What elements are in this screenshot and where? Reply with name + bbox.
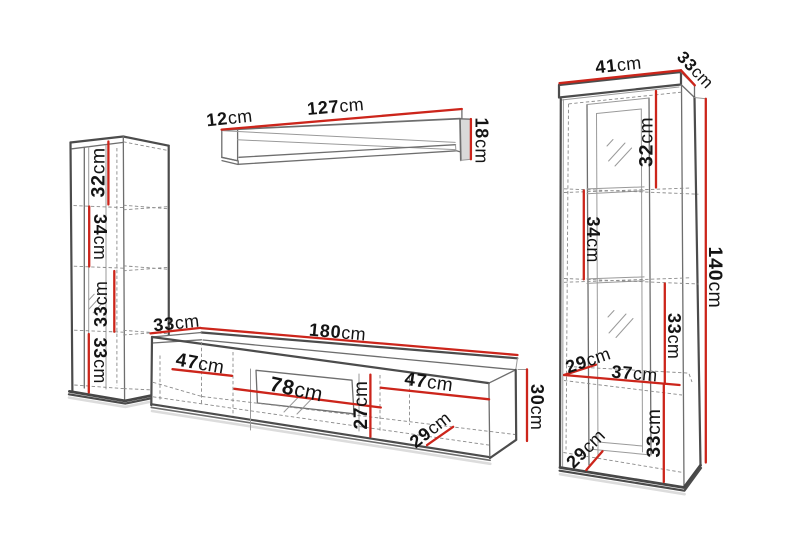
svg-text:27cm: 27cm	[351, 381, 372, 430]
svg-text:34cm: 34cm	[90, 214, 110, 260]
svg-text:33cm: 33cm	[664, 313, 684, 359]
svg-text:37cm: 37cm	[611, 362, 659, 386]
svg-text:18cm: 18cm	[472, 118, 492, 164]
svg-text:33cm: 33cm	[90, 338, 110, 384]
svg-text:140cm: 140cm	[704, 247, 726, 309]
svg-text:33cm: 33cm	[91, 281, 111, 327]
svg-text:30cm: 30cm	[527, 384, 547, 430]
svg-text:32cm: 32cm	[636, 117, 658, 167]
svg-text:33cm: 33cm	[644, 409, 665, 458]
svg-text:34cm: 34cm	[583, 217, 603, 263]
svg-text:32cm: 32cm	[88, 148, 110, 198]
